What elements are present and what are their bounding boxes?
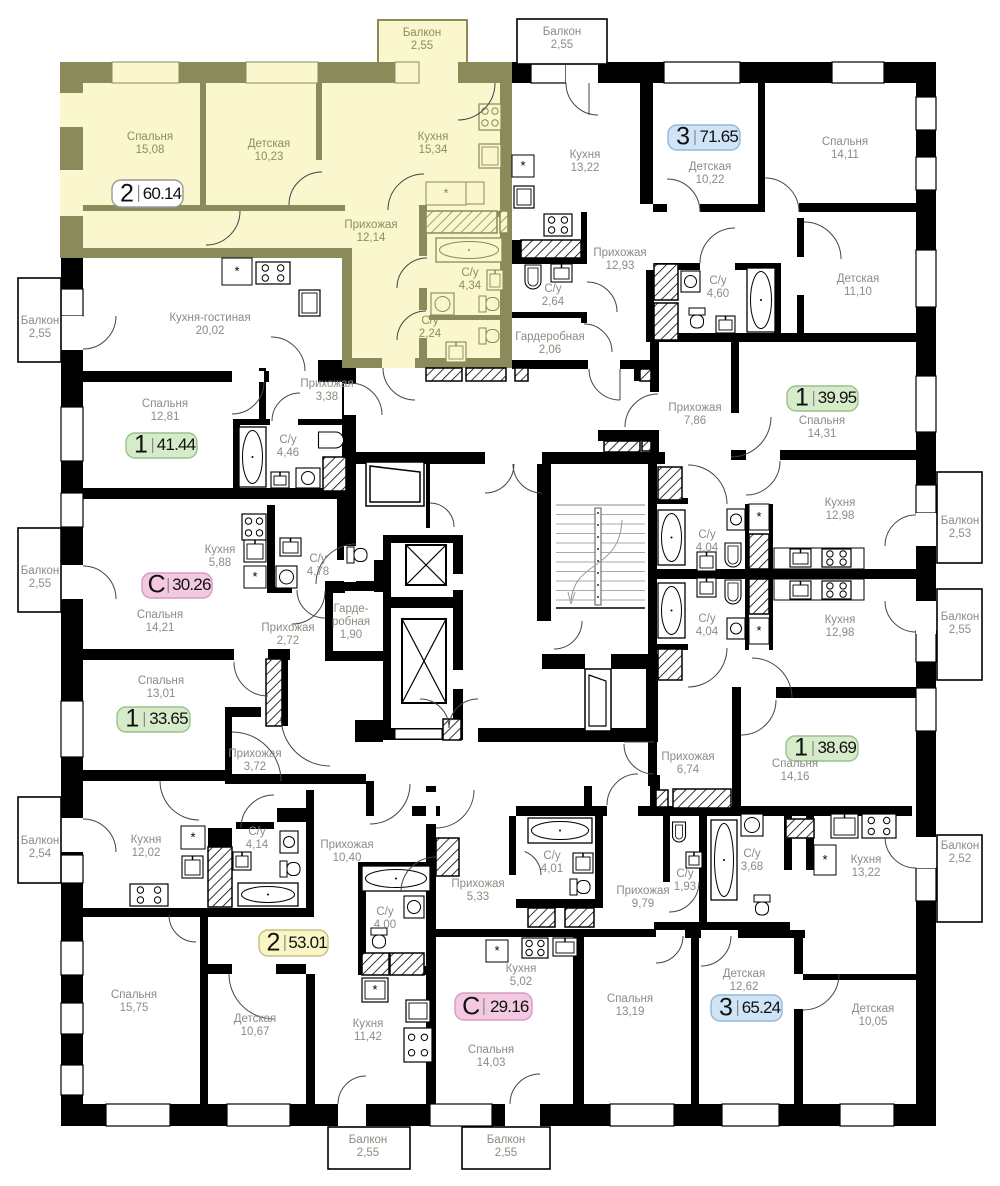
svg-text:Балкон: Балкон [403,27,442,39]
svg-text:Кухня: Кухня [825,614,856,626]
svg-text:Балкон: Балкон [21,565,60,577]
svg-text:4,46: 4,46 [277,447,299,459]
svg-text:Балкон: Балкон [941,611,980,623]
svg-text:Прихожая: Прихожая [661,751,714,763]
svg-text:С/у: С/у [544,283,562,295]
svg-text:Кухня: Кухня [131,834,162,846]
svg-text:2,52: 2,52 [949,853,971,865]
svg-text:Детская: Детская [852,1003,895,1015]
svg-text:2,55: 2,55 [949,624,971,636]
svg-text:4,00: 4,00 [374,919,396,931]
svg-text:С/у: С/у [248,826,266,838]
svg-text:*: * [443,186,448,201]
svg-text:Спальня: Спальня [772,758,818,770]
svg-text:*: * [520,158,525,173]
svg-text:10,40: 10,40 [333,852,362,864]
svg-text:1: 1 [125,705,139,733]
svg-text:5,88: 5,88 [209,557,231,569]
svg-text:5,02: 5,02 [510,976,532,988]
svg-text:Прихожая: Прихожая [593,247,646,259]
svg-text:7,86: 7,86 [684,415,706,427]
svg-text:Балкон: Балкон [349,1134,388,1146]
svg-text:3,72: 3,72 [244,761,266,773]
svg-text:5,33: 5,33 [467,891,489,903]
svg-text:71.65: 71.65 [699,127,738,146]
svg-text:15,08: 15,08 [136,144,165,156]
svg-text:12,14: 12,14 [357,232,386,244]
svg-text:Гарде-: Гарде- [333,603,368,615]
svg-text:12,98: 12,98 [826,627,855,639]
svg-text:4,14: 4,14 [246,839,269,851]
svg-text:2,55: 2,55 [495,1147,517,1159]
svg-text:Балкон: Балкон [941,840,980,852]
svg-text:2,72: 2,72 [277,635,299,647]
svg-text:2: 2 [267,929,281,957]
svg-text:*: * [234,264,239,279]
svg-text:*: * [372,982,377,997]
svg-text:Балкон: Балкон [21,315,60,327]
svg-text:Кухня: Кухня [418,131,449,143]
svg-text:*: * [756,623,761,638]
svg-text:2,55: 2,55 [29,328,51,340]
svg-text:41.44: 41.44 [157,435,196,454]
svg-text:3: 3 [676,123,690,151]
svg-text:Кухня: Кухня [506,963,537,975]
svg-text:10,22: 10,22 [696,174,725,186]
svg-text:13,19: 13,19 [616,1006,645,1018]
svg-text:14,31: 14,31 [808,428,837,440]
svg-text:53.01: 53.01 [288,933,327,952]
svg-text:Кухня: Кухня [570,149,601,161]
svg-text:60.14: 60.14 [143,184,182,203]
svg-text:С/у: С/у [709,275,727,287]
svg-text:4,01: 4,01 [541,863,563,875]
svg-text:С/у: С/у [543,850,561,862]
svg-text:38.69: 38.69 [817,738,856,757]
svg-text:29.16: 29.16 [490,997,529,1016]
svg-text:Прихожая: Прихожая [344,219,397,231]
svg-text:Спальня: Спальня [822,136,868,148]
svg-text:Прихожая: Прихожая [451,878,504,890]
svg-text:*: * [252,569,257,584]
svg-text:Детская: Детская [248,138,291,150]
svg-text:Спальня: Спальня [799,415,845,427]
svg-text:*: * [822,852,827,867]
svg-text:1,93: 1,93 [674,881,696,893]
svg-text:2,55: 2,55 [357,1147,379,1159]
svg-text:4,60: 4,60 [707,288,729,300]
svg-text:11,10: 11,10 [844,286,872,298]
svg-text:Прихожая: Прихожая [616,885,669,897]
svg-text:С/у: С/у [461,267,479,279]
svg-text:13,22: 13,22 [852,867,881,879]
svg-text:Детская: Детская [689,161,732,173]
svg-text:Кухня-гостиная: Кухня-гостиная [169,312,250,324]
svg-text:10,05: 10,05 [859,1016,888,1028]
svg-text:*: * [494,943,499,958]
svg-text:3: 3 [719,994,733,1022]
svg-text:Прихожая: Прихожая [261,622,314,634]
svg-text:С/у: С/у [309,553,327,565]
svg-text:Балкон: Балкон [543,26,582,38]
svg-text:Спальня: Спальня [607,993,653,1005]
svg-text:20,02: 20,02 [196,325,225,337]
svg-text:6,74: 6,74 [677,764,700,776]
svg-text:3,68: 3,68 [741,861,763,873]
svg-text:15,34: 15,34 [419,144,448,156]
svg-text:2,55: 2,55 [411,40,433,52]
svg-text:2,06: 2,06 [539,344,561,356]
svg-text:30.26: 30.26 [172,575,211,594]
svg-text:2,24: 2,24 [419,328,442,340]
svg-text:14,03: 14,03 [477,1057,506,1069]
svg-text:Балкон: Балкон [21,835,60,847]
svg-text:Кухня: Кухня [353,1018,384,1030]
svg-text:14,11: 14,11 [831,149,859,161]
svg-text:Прихожая: Прихожая [320,839,373,851]
svg-text:Прихожая: Прихожая [668,402,721,414]
svg-text:4,78: 4,78 [307,566,329,578]
svg-text:2,55: 2,55 [551,39,573,51]
svg-text:Балкон: Балкон [487,1134,526,1146]
svg-text:С/у: С/у [376,906,394,918]
svg-text:Кухня: Кухня [851,854,882,866]
svg-text:Детская: Детская [837,273,880,285]
svg-text:14,21: 14,21 [146,622,175,634]
svg-text:Спальня: Спальня [111,989,157,1001]
svg-text:С/у: С/у [421,315,439,327]
svg-text:Прихожая: Прихожая [300,378,353,390]
svg-text:С/у: С/у [743,848,761,860]
svg-text:12,02: 12,02 [132,847,161,859]
svg-text:13,01: 13,01 [147,688,176,700]
svg-text:65.24: 65.24 [742,998,781,1017]
svg-text:Детская: Детская [723,968,766,980]
svg-text:Спальня: Спальня [127,131,173,143]
svg-text:11,42: 11,42 [354,1031,382,1043]
svg-text:Спальня: Спальня [468,1044,514,1056]
svg-text:робная: робная [332,616,370,628]
svg-text:1,90: 1,90 [340,629,362,641]
svg-text:Балкон: Балкон [941,515,980,527]
svg-text:*: * [190,830,195,845]
svg-text:2,64: 2,64 [542,296,565,308]
svg-text:С/у: С/у [698,529,716,541]
svg-text:9,79: 9,79 [632,898,654,910]
svg-text:12,81: 12,81 [151,411,180,423]
svg-text:12,93: 12,93 [606,260,635,272]
svg-text:12,98: 12,98 [826,510,855,522]
svg-text:10,67: 10,67 [241,1026,270,1038]
svg-text:2,53: 2,53 [949,528,971,540]
svg-text:*: * [756,509,761,524]
svg-text:10,23: 10,23 [255,151,284,163]
svg-text:15,75: 15,75 [120,1002,149,1014]
svg-text:12,62: 12,62 [730,981,759,993]
svg-text:33.65: 33.65 [149,709,188,728]
svg-text:Кухня: Кухня [825,497,856,509]
svg-text:13,22: 13,22 [571,162,600,174]
svg-text:39.95: 39.95 [818,388,857,407]
svg-text:4,04: 4,04 [696,626,719,638]
svg-text:С: С [148,571,166,599]
svg-text:3,38: 3,38 [316,391,338,403]
svg-text:Кухня: Кухня [205,544,236,556]
svg-text:Гардеробная: Гардеробная [515,331,585,343]
svg-text:Детская: Детская [234,1013,277,1025]
svg-text:4,04: 4,04 [696,542,719,554]
svg-text:Спальня: Спальня [137,609,183,621]
svg-text:Прихожая: Прихожая [228,748,281,760]
svg-text:С/у: С/у [676,868,694,880]
svg-text:1: 1 [134,431,148,459]
svg-text:Спальня: Спальня [142,398,188,410]
svg-text:2,54: 2,54 [29,848,52,860]
svg-text:14,16: 14,16 [781,771,810,783]
svg-text:Спальня: Спальня [138,675,184,687]
svg-text:С/у: С/у [698,613,716,625]
svg-text:2: 2 [120,180,134,208]
svg-text:1: 1 [795,384,809,412]
svg-text:С/у: С/у [279,434,297,446]
svg-text:2,55: 2,55 [29,578,51,590]
svg-text:С: С [462,993,480,1021]
svg-text:4,34: 4,34 [459,280,482,292]
